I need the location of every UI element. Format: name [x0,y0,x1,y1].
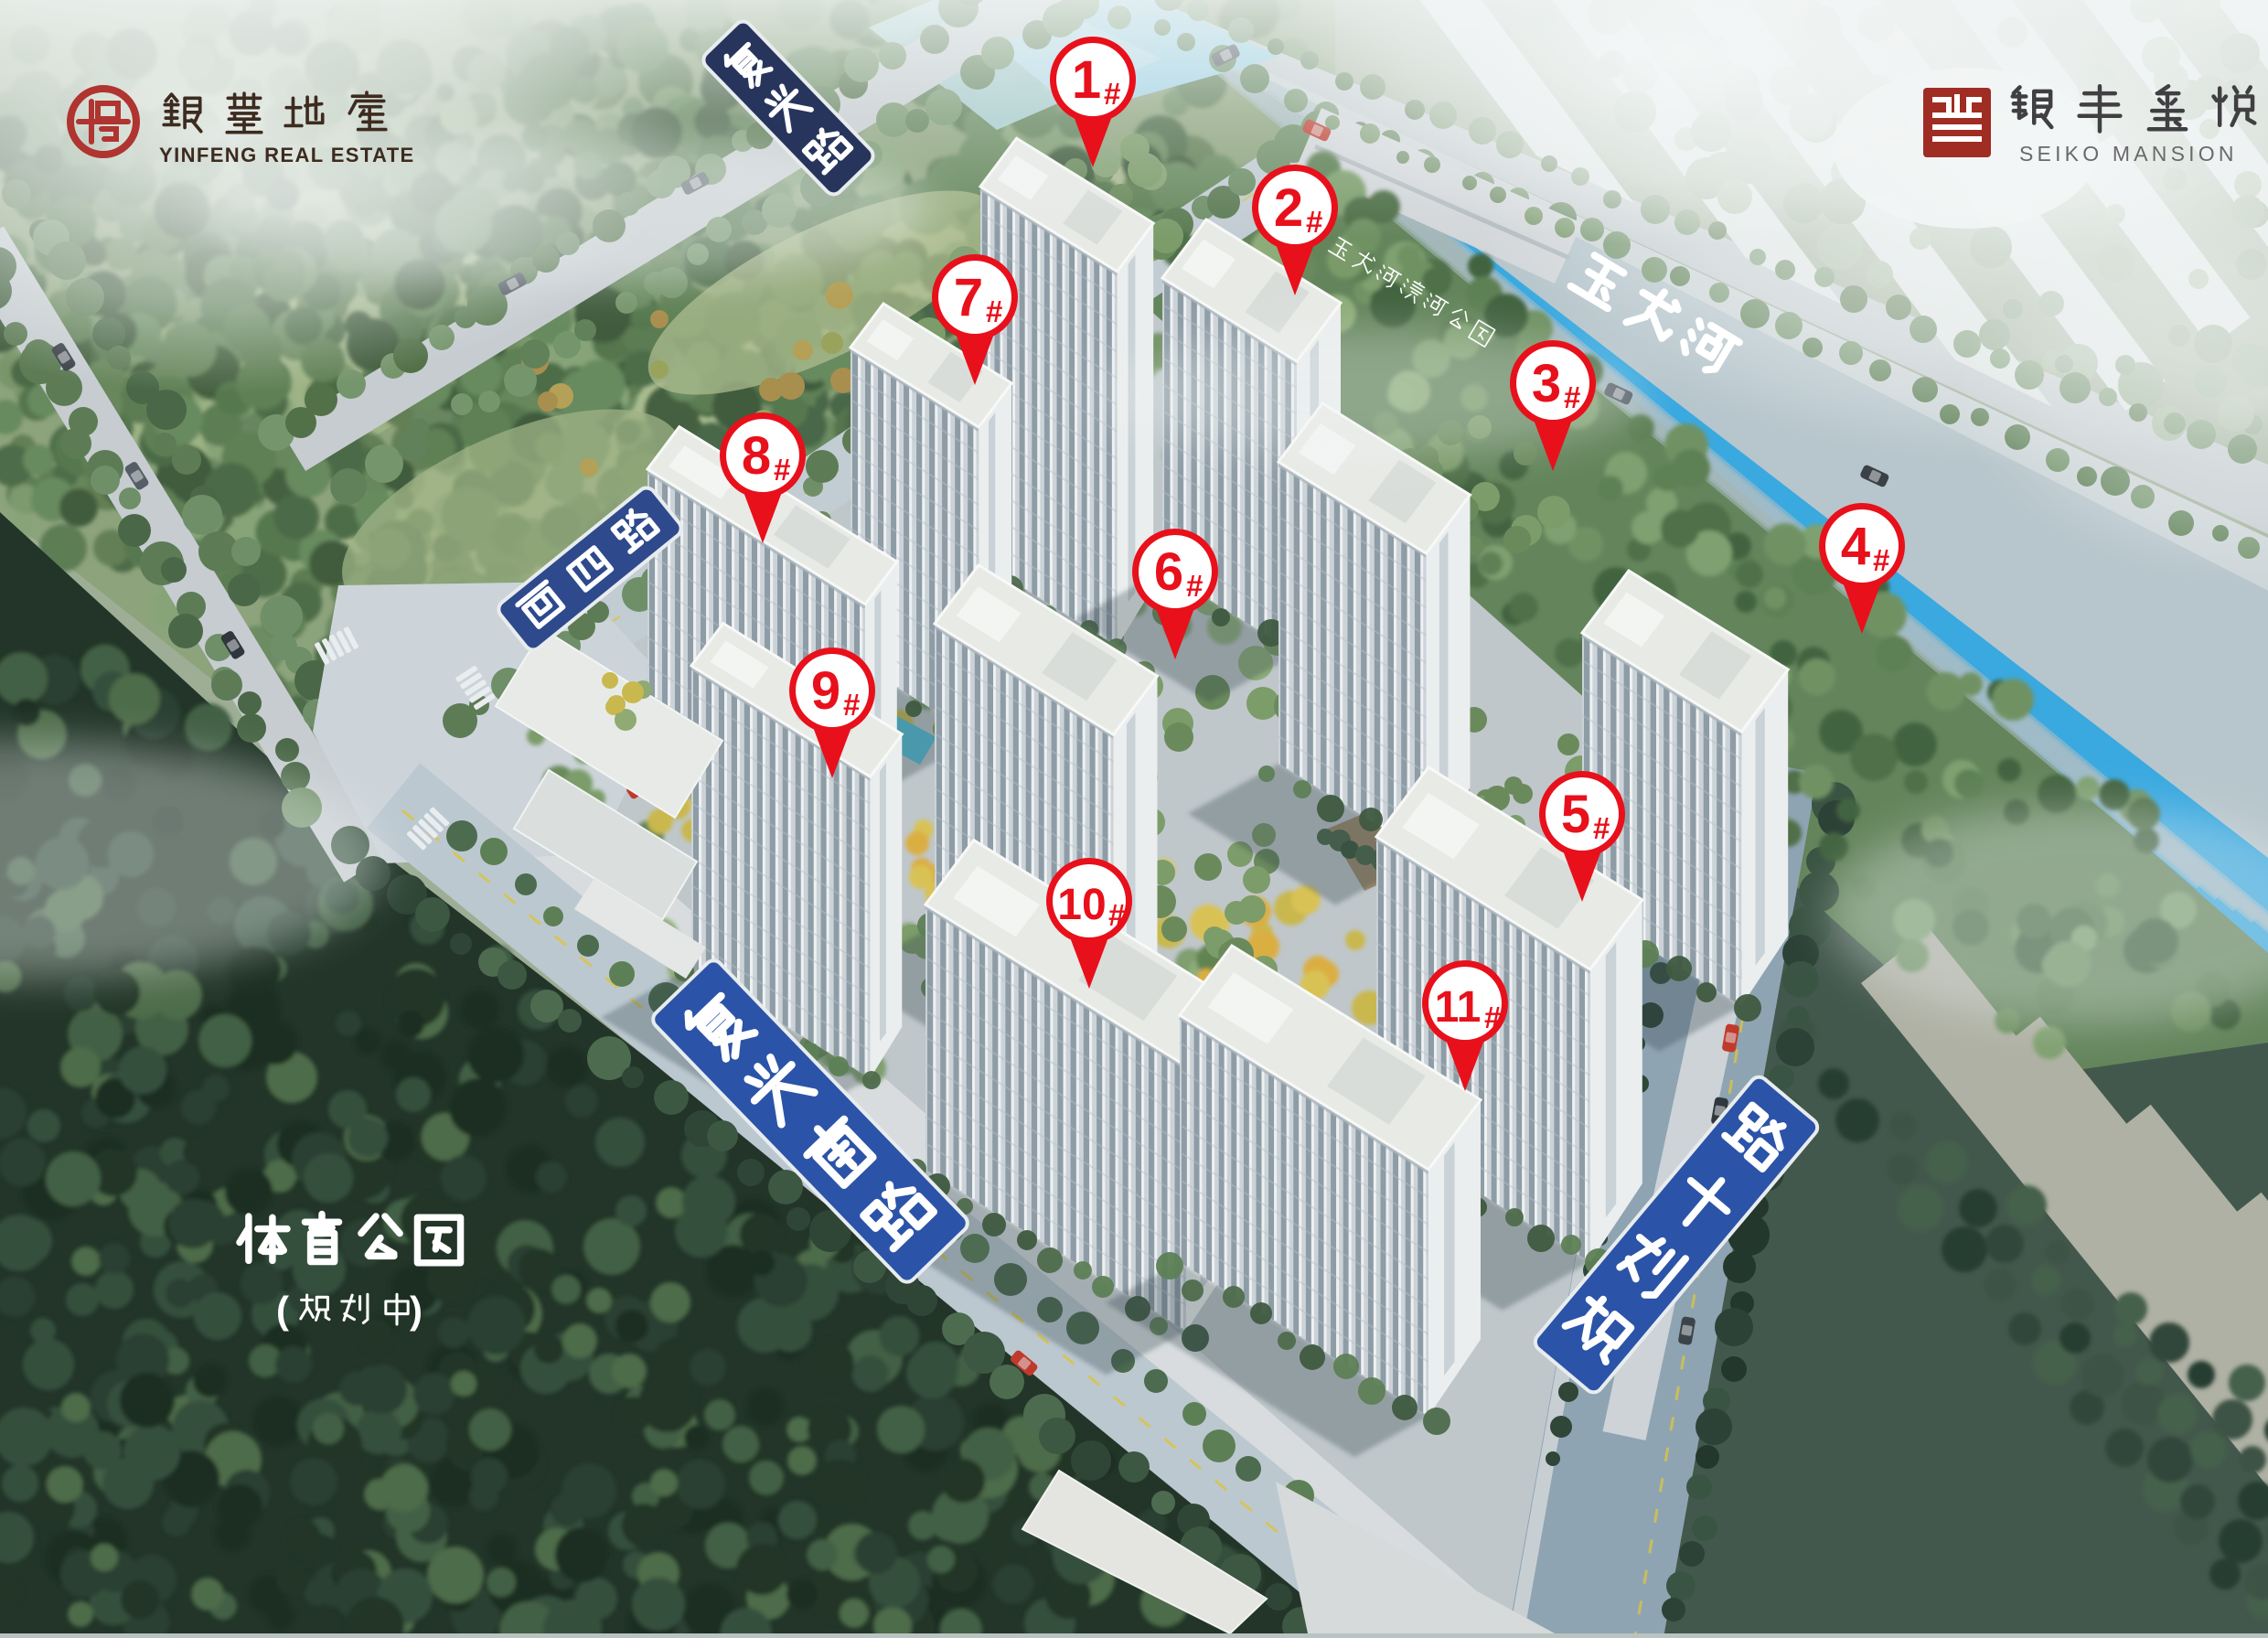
svg-text:#: # [1306,205,1322,239]
svg-text:#: # [1593,811,1610,845]
svg-text:#: # [1873,543,1889,577]
svg-text:): ) [410,1289,423,1332]
svg-text:6: 6 [1154,542,1183,602]
svg-text:1: 1 [1072,50,1101,110]
svg-text:YINFENG REAL ESTATE: YINFENG REAL ESTATE [159,144,415,166]
svg-text:5: 5 [1561,785,1590,844]
svg-text:4: 4 [1841,517,1870,576]
svg-text:10: 10 [1057,881,1106,929]
svg-text:9: 9 [811,661,840,721]
svg-text:#: # [774,453,790,487]
svg-text:SEIKO MANSION: SEIKO MANSION [2019,142,2238,166]
svg-text:#: # [843,688,860,722]
svg-text:2: 2 [1274,178,1303,238]
svg-text:#: # [1186,569,1203,603]
svg-text:#: # [986,294,1002,328]
svg-text:11: 11 [1435,983,1482,1032]
svg-text:8: 8 [742,426,771,486]
svg-text:#: # [1564,380,1580,414]
svg-text:#: # [1484,1001,1501,1034]
svg-text:3: 3 [1532,354,1561,413]
svg-text:7: 7 [954,268,983,327]
svg-text:(: ( [276,1289,289,1332]
svg-text:#: # [1108,898,1125,932]
svg-text:#: # [1104,77,1120,111]
